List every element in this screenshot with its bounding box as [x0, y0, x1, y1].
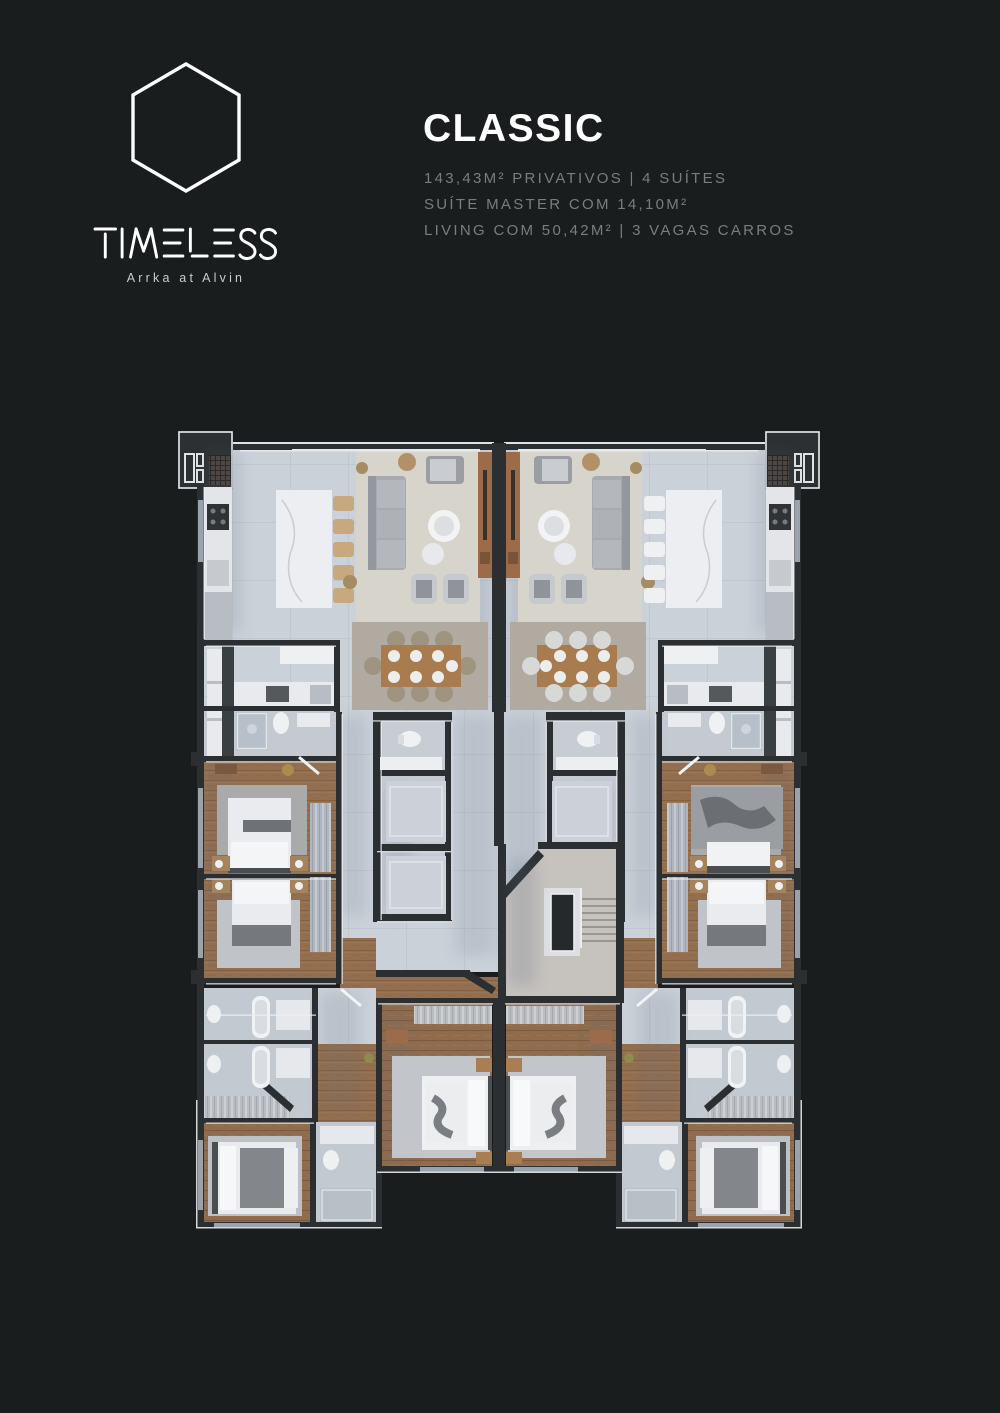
svg-text:143,43M² PRIVATIVOS | 4 SUÍTES: 143,43M² PRIVATIVOS | 4 SUÍTES — [424, 170, 727, 187]
svg-text:Arrka at Alvin: Arrka at Alvin — [127, 271, 245, 285]
svg-text:LIVING COM 50,42M² | 3 VAGAS C: LIVING COM 50,42M² | 3 VAGAS CARROS — [424, 222, 796, 239]
svg-text:SUÍTE MASTER COM 14,10M²: SUÍTE MASTER COM 14,10M² — [424, 196, 688, 213]
svg-text:CLASSIC: CLASSIC — [423, 107, 605, 150]
